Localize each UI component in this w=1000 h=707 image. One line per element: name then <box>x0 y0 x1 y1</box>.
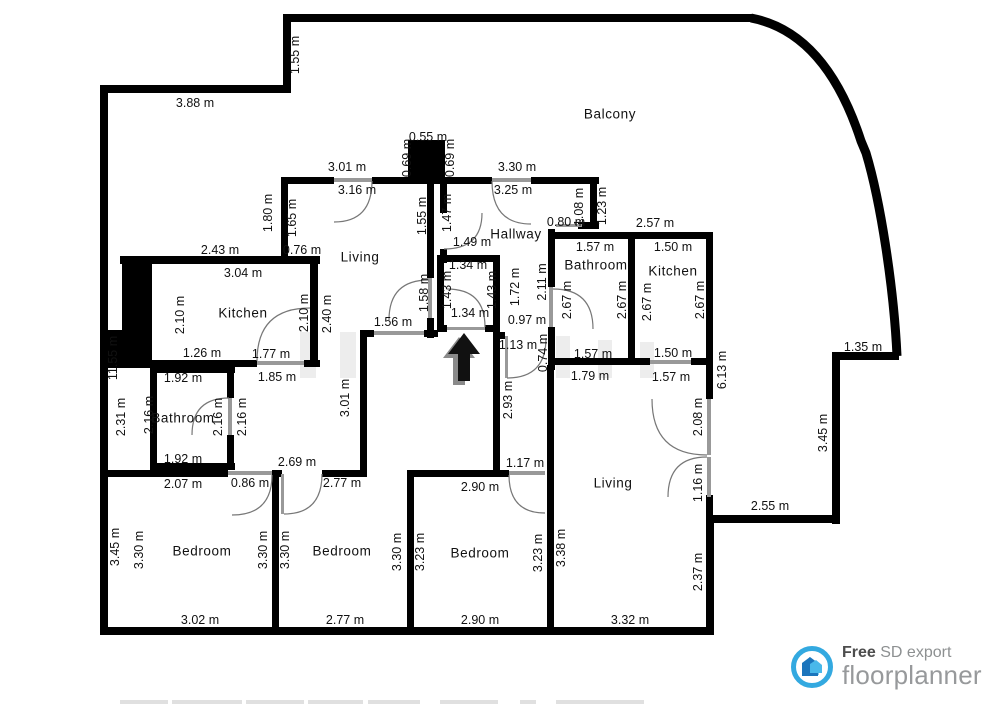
floorplanner-logo: Free SD export floorplanner <box>791 645 982 689</box>
floorplanner-logo-icon <box>791 646 833 688</box>
logo-sd-export-label: SD export <box>880 644 951 661</box>
floorplanner-logo-text: Free SD export floorplanner <box>842 645 982 689</box>
bottom-faint-marks <box>120 700 644 704</box>
north-arrow-icon <box>443 333 480 385</box>
walls <box>100 14 899 635</box>
watermark <box>300 332 654 378</box>
house-icon <box>799 655 825 679</box>
logo-free-label: Free <box>842 644 876 661</box>
floorplan-drawing <box>0 0 1000 707</box>
floorplan-canvas: 3.88 m0.55 m3.01 m3.16 m3.30 m3.25 m2.57… <box>0 0 1000 707</box>
logo-brand-name: floorplanner <box>842 662 982 689</box>
